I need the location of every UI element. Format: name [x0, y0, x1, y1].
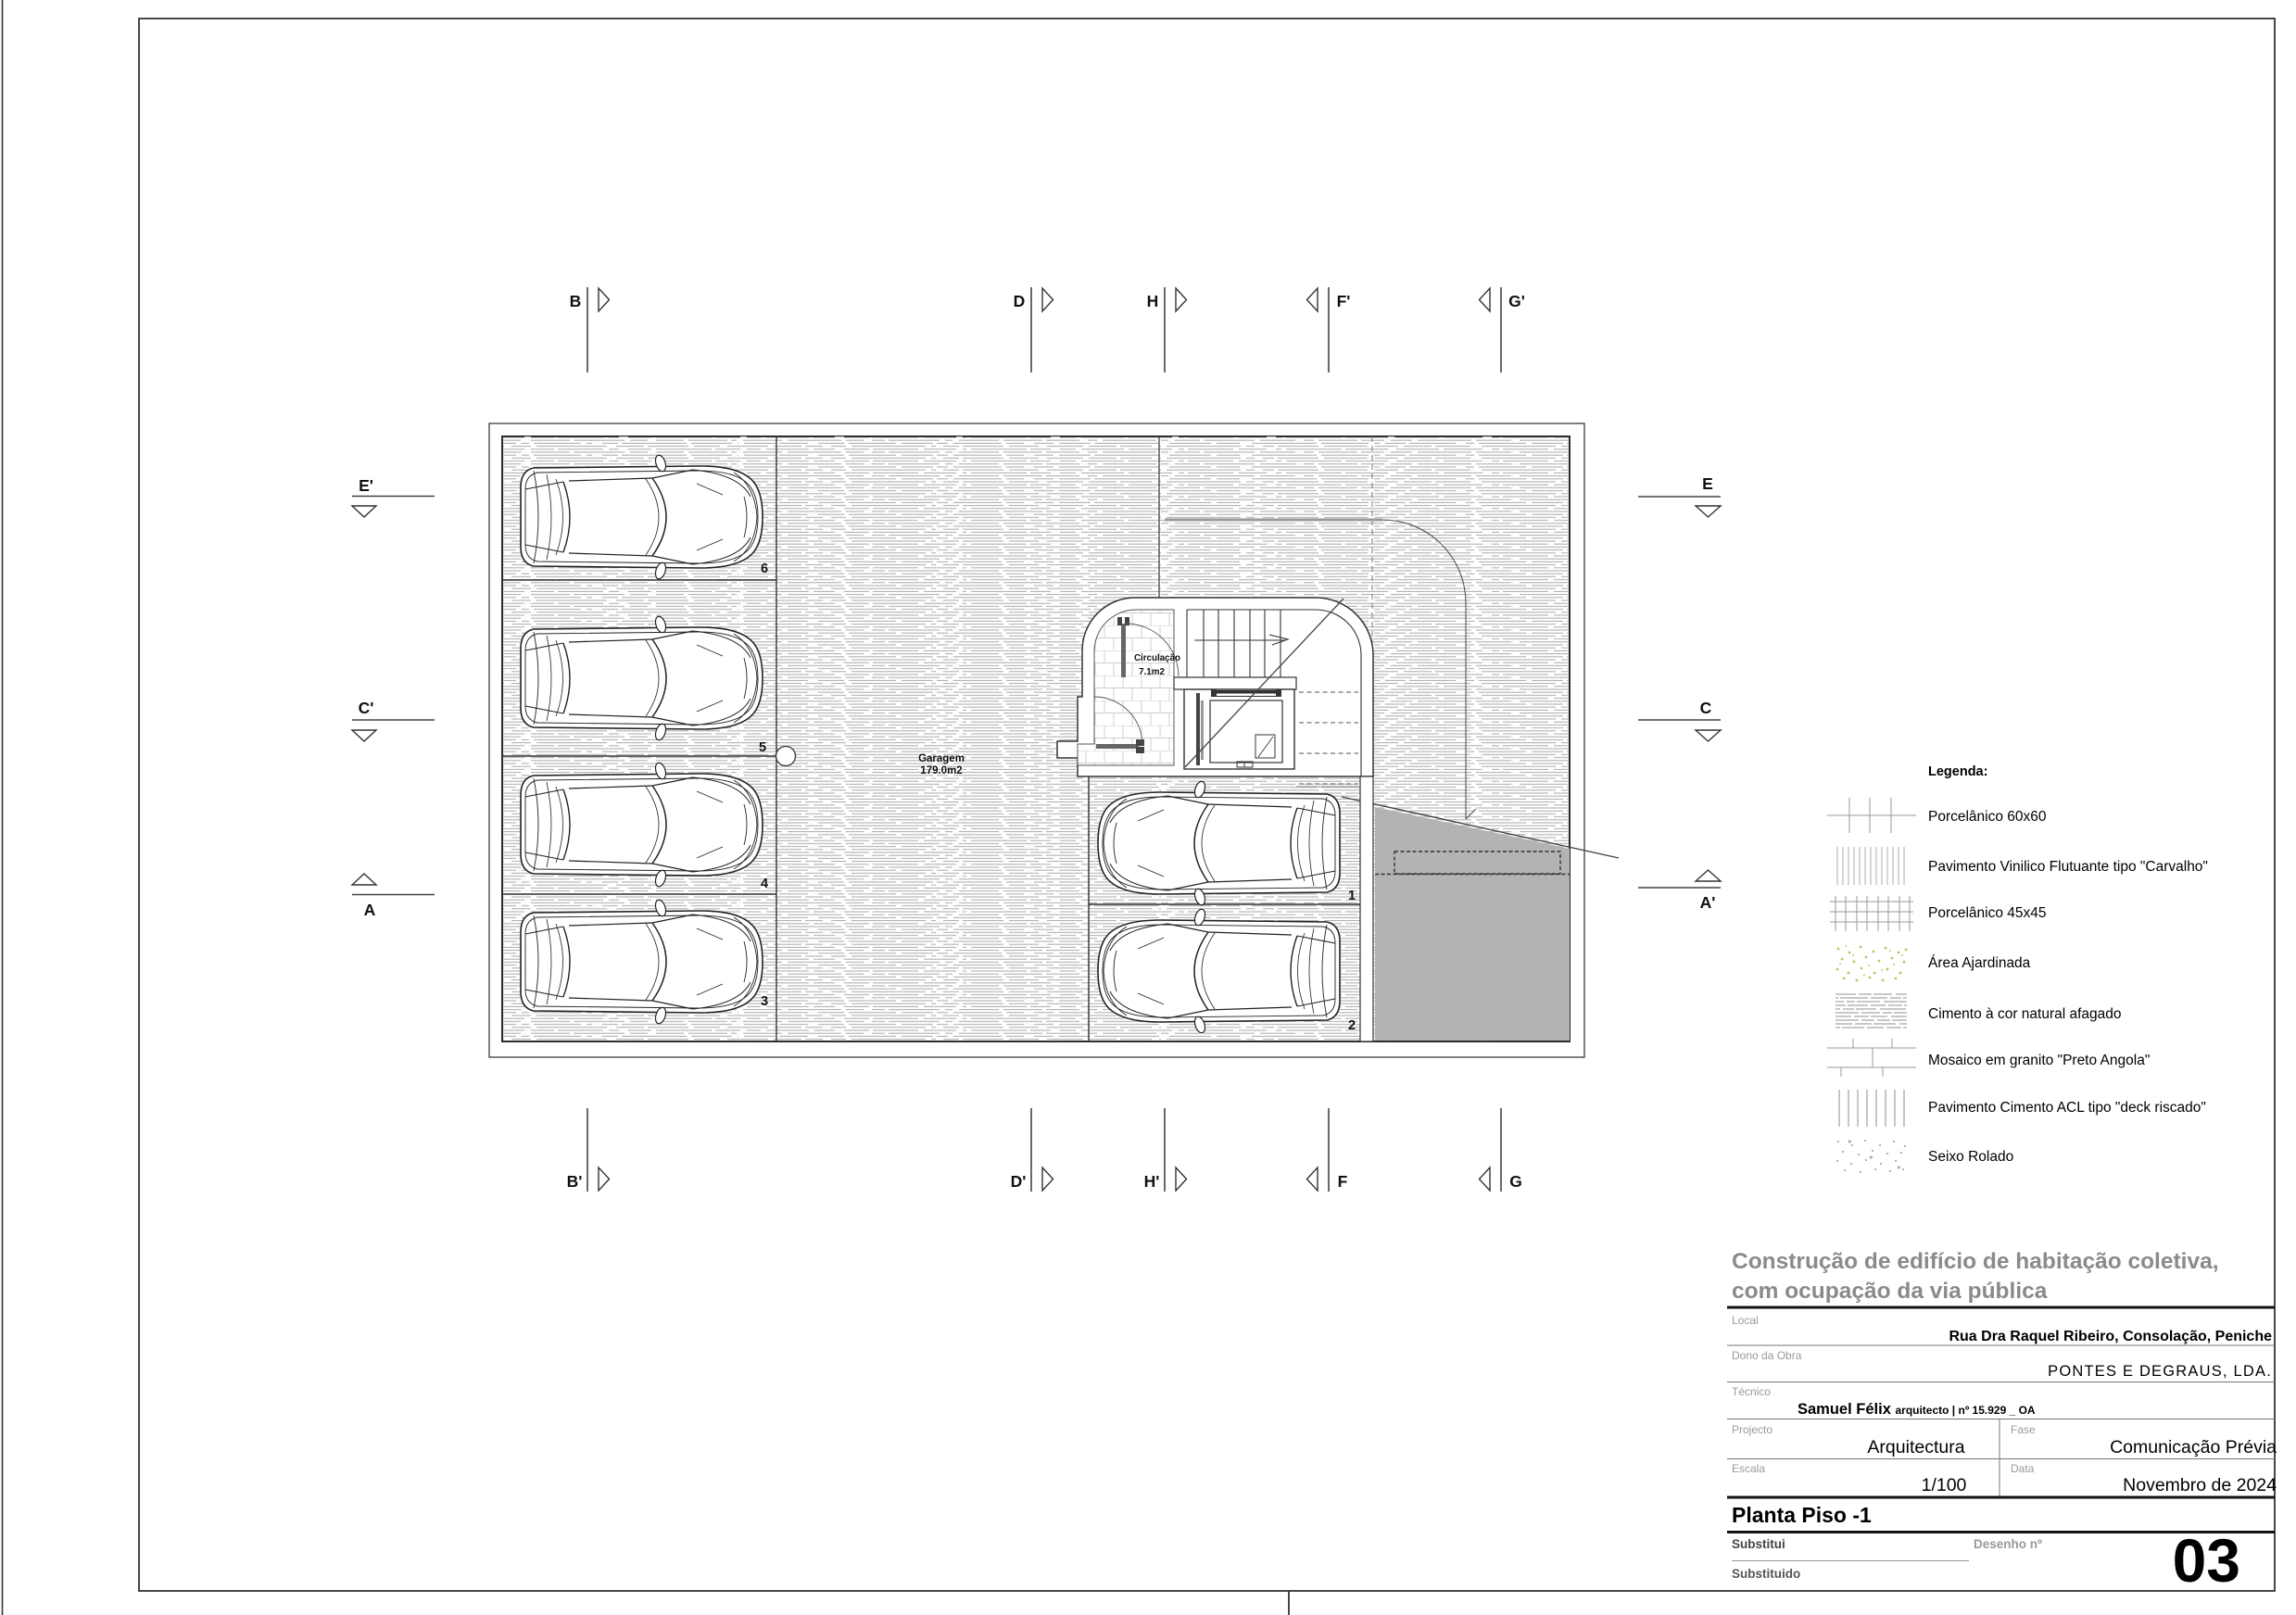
svg-text:H: H	[1147, 292, 1159, 310]
svg-text:Dono da Obra: Dono da Obra	[1732, 1349, 1802, 1362]
svg-text:Data: Data	[2011, 1462, 2035, 1475]
svg-text:Garagem: Garagem	[918, 753, 965, 764]
svg-text:E': E'	[359, 476, 373, 495]
svg-text:B': B'	[567, 1172, 583, 1191]
svg-text:Planta Piso -1: Planta Piso -1	[1732, 1503, 1872, 1527]
svg-text:Desenho nº: Desenho nº	[1974, 1537, 2042, 1551]
svg-text:3: 3	[761, 994, 768, 1009]
svg-text:G: G	[1509, 1172, 1522, 1191]
svg-text:Rua Dra Raquel Ribeiro, Consol: Rua Dra Raquel Ribeiro, Consolação, Peni…	[1949, 1329, 2272, 1344]
svg-text:D: D	[1014, 292, 1026, 310]
svg-text:Substituido: Substituido	[1732, 1567, 1800, 1581]
svg-text:Área Ajardinada: Área Ajardinada	[1928, 955, 2031, 971]
svg-text:Samuel Félix arquitecto | nº 1: Samuel Félix arquitecto | nº 15.929 _ OA	[1798, 1401, 2036, 1418]
svg-text:Técnico: Técnico	[1732, 1385, 1771, 1398]
svg-text:Porcelânico 45x45: Porcelânico 45x45	[1928, 905, 2047, 921]
svg-text:Circulação: Circulação	[1134, 653, 1180, 663]
svg-text:Pavimento Vinilico Flutuante t: Pavimento Vinilico Flutuante tipo "Carva…	[1928, 859, 2208, 875]
svg-text:E: E	[1702, 474, 1713, 493]
svg-text:C: C	[1700, 699, 1712, 717]
svg-text:D': D'	[1011, 1172, 1027, 1191]
svg-text:H': H'	[1144, 1172, 1160, 1191]
svg-text:Legenda:: Legenda:	[1928, 764, 1987, 779]
svg-text:Substitui: Substitui	[1732, 1537, 1785, 1551]
svg-text:Escala: Escala	[1732, 1462, 1765, 1475]
svg-text:Fase: Fase	[2011, 1423, 2036, 1436]
svg-text:179.0m2: 179.0m2	[920, 765, 962, 776]
svg-text:PONTES E DEGRAUS, LDA.: PONTES E DEGRAUS, LDA.	[2048, 1363, 2272, 1380]
svg-text:A': A'	[1700, 893, 1716, 912]
svg-text:Novembro de 2024: Novembro de 2024	[2123, 1475, 2277, 1495]
svg-text:4: 4	[761, 877, 768, 891]
svg-text:Mosaico em granito "Preto Ango: Mosaico em granito "Preto Angola"	[1928, 1053, 2150, 1068]
svg-text:Projecto: Projecto	[1732, 1423, 1772, 1436]
svg-text:Arquitectura: Arquitectura	[1867, 1437, 1964, 1457]
svg-text:1: 1	[1348, 889, 1356, 903]
svg-text:6: 6	[761, 561, 768, 576]
svg-text:Construção de edifício de habi: Construção de edifício de habitação cole…	[1732, 1249, 2219, 1274]
svg-text:Local: Local	[1732, 1314, 1759, 1327]
svg-text:03: 03	[2173, 1526, 2240, 1595]
svg-text:A: A	[364, 901, 376, 919]
svg-text:F': F'	[1337, 292, 1351, 310]
svg-text:G': G'	[1508, 292, 1525, 310]
svg-text:Comunicação Prévia: Comunicação Prévia	[2110, 1437, 2277, 1457]
svg-text:Seixo Rolado: Seixo Rolado	[1928, 1149, 2013, 1165]
svg-text:1/100: 1/100	[1922, 1475, 1967, 1495]
svg-text:C': C'	[359, 699, 374, 717]
svg-text:2: 2	[1348, 1018, 1356, 1033]
svg-text:Porcelânico 60x60: Porcelânico 60x60	[1928, 809, 2047, 825]
svg-text:Cimento à cor natural afagado: Cimento à cor natural afagado	[1928, 1006, 2122, 1022]
svg-text:7.1m2: 7.1m2	[1139, 667, 1165, 677]
svg-text:B: B	[570, 292, 582, 310]
svg-text:5: 5	[759, 740, 766, 755]
svg-text:Pavimento Cimento ACL tipo "de: Pavimento Cimento ACL tipo "deck riscado…	[1928, 1100, 2206, 1116]
svg-text:com ocupação da via pública: com ocupação da via pública	[1732, 1279, 2048, 1304]
svg-text:F: F	[1338, 1172, 1348, 1191]
